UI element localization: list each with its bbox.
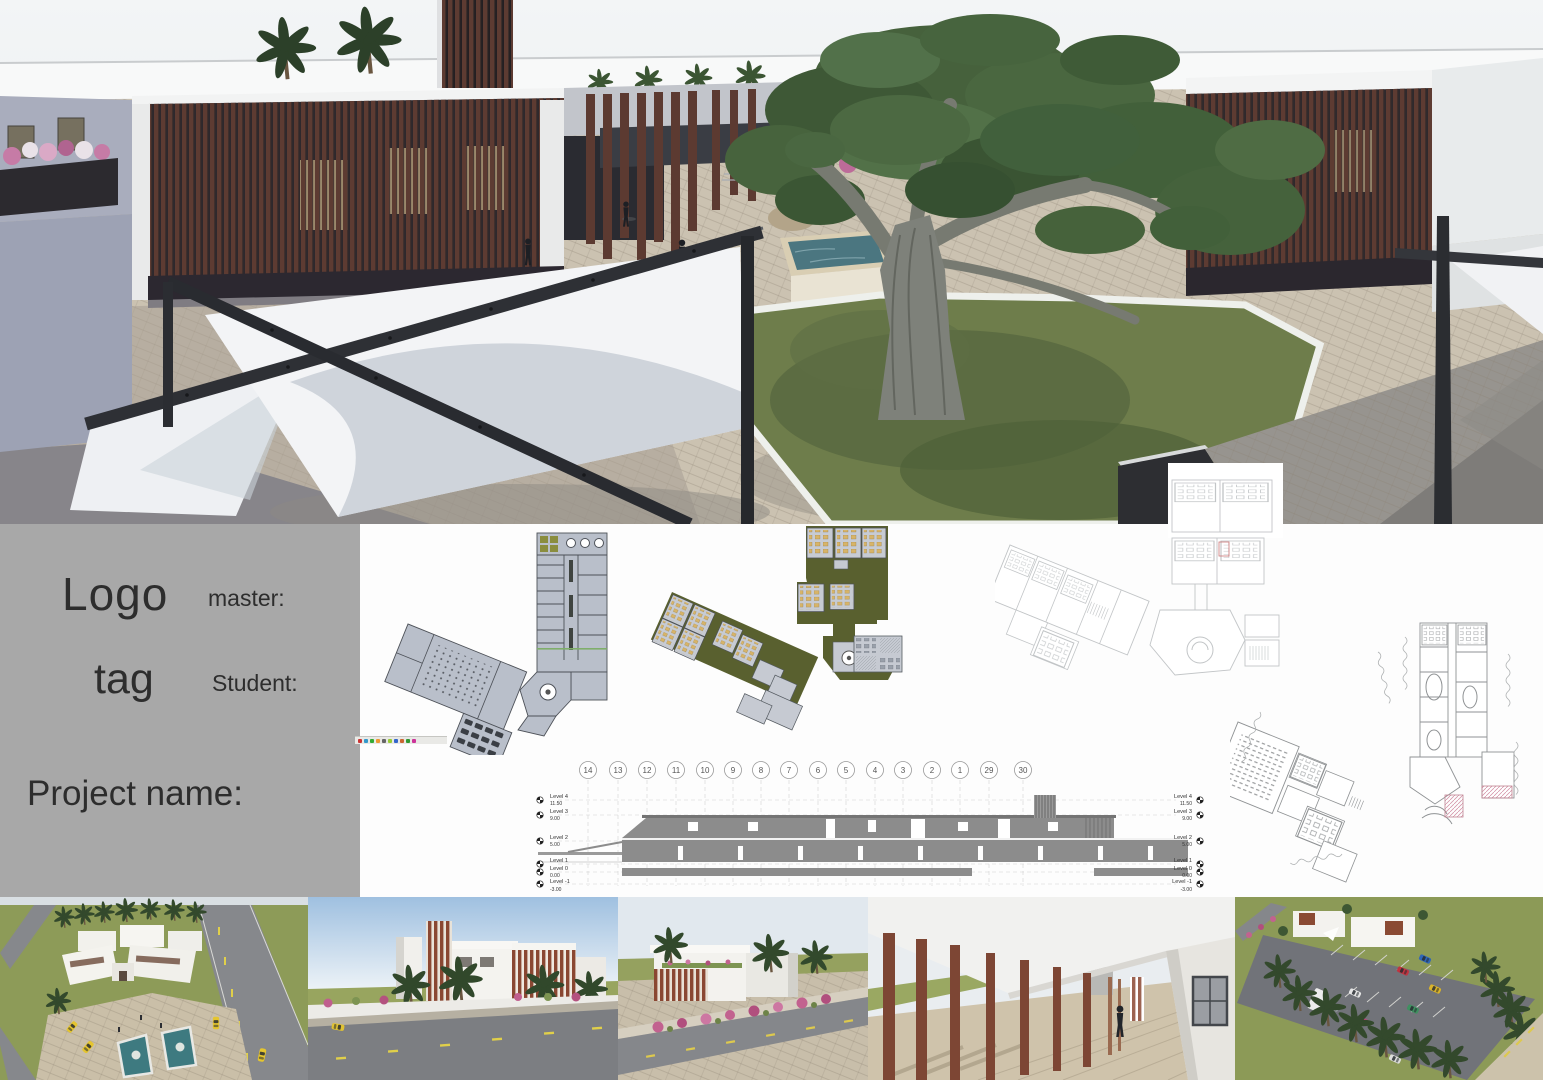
level-elevation: 11.50 [550, 801, 562, 807]
thumb-street-elevation-render [308, 897, 618, 1080]
level-name: Level 2 [1174, 835, 1192, 841]
grid-bubble-label: 7 [787, 766, 792, 775]
grid-bubble-label: 4 [873, 766, 878, 775]
floor-plan-colored-1 [368, 520, 648, 755]
level-name: Level 0 [550, 866, 568, 872]
building-section-drawing: 14 13 12 11 10 9 8 7 6 5 4 3 2 1 29 30 [528, 750, 1218, 896]
grid-bubble-label: 5 [844, 766, 849, 775]
level-name: Level -1 [550, 879, 570, 885]
hero-courtyard-render [0, 0, 1543, 524]
grid-bubble-label: 13 [614, 766, 623, 775]
thumb-parking-aerial-render [1235, 897, 1543, 1080]
left-terrace-wall [0, 96, 132, 452]
title-info-panel: Logo tag master: Student: Project name: [0, 524, 360, 897]
building-cluster [62, 925, 202, 985]
grid-bubble-label: 30 [1019, 766, 1028, 775]
grid-bubbles: 14 13 12 11 10 9 8 7 6 5 4 3 2 1 29 30 [580, 762, 1032, 779]
logo-text-line1: Logo [62, 567, 168, 621]
admin-block [854, 636, 902, 672]
level-name: Level -1 [1172, 879, 1192, 885]
grid-bubble-label: 9 [731, 766, 736, 775]
floor-plan-colored-2 [648, 518, 948, 758]
presentation-board: Logo tag master: Student: Project name: [0, 0, 1543, 1080]
level-name: Level 1 [1174, 858, 1192, 864]
line-plan-wing [995, 545, 1149, 688]
grid-bubble-label: 10 [701, 766, 710, 775]
level-name: Level 3 [550, 809, 568, 815]
classroom-wing [650, 592, 818, 706]
level-elevation: -3.00 [550, 887, 562, 893]
level-elevation: 5.00 [550, 842, 560, 848]
level-name: Level 4 [1174, 794, 1192, 800]
level-elevation: 11.50 [1180, 801, 1192, 807]
floor-plan-line-2 [1230, 592, 1543, 892]
level-name: Level 3 [1174, 809, 1192, 815]
grid-bubble-label: 3 [901, 766, 906, 775]
grid-bubble-label: 1 [958, 766, 963, 775]
level-elevation: 9.00 [1182, 816, 1192, 822]
grid-bubble-label: 6 [816, 766, 821, 775]
master-label: master: [208, 585, 285, 612]
level-elevation: -3.00 [1181, 887, 1193, 893]
logo-text-line2: tag [94, 655, 154, 704]
thumb-aerial-roundabout-render [0, 897, 308, 1080]
thumb-colonnade-walkway-render [868, 897, 1235, 1080]
grid-bubble-label: 29 [985, 766, 994, 775]
level-elevation: 5.00 [1182, 842, 1192, 848]
level-name: Level 0 [1174, 866, 1192, 872]
grid-bubble-label: 11 [672, 766, 681, 775]
project-name-label: Project name: [27, 774, 243, 814]
level-elevation: 9.00 [550, 816, 560, 822]
grid-bubble-label: 14 [584, 766, 593, 775]
grid-bubble-label: 12 [643, 766, 652, 775]
thumb-corner-aerial-render [618, 897, 868, 1080]
grid-bubble-label: 2 [930, 766, 935, 775]
level-name: Level 1 [550, 858, 568, 864]
level-labels-left: Level 4 11.50 Level 3 9.00 Level 2 5.00 … [537, 794, 570, 893]
level-name: Level 4 [550, 794, 568, 800]
audit-wing [1230, 722, 1386, 882]
taskbar-remnant [355, 736, 447, 744]
grid-bubble-label: 8 [759, 766, 764, 775]
level-name: Level 2 [550, 835, 568, 841]
student-label: Student: [212, 670, 298, 697]
flower-planter [0, 140, 118, 216]
slat-tower [437, 0, 513, 88]
